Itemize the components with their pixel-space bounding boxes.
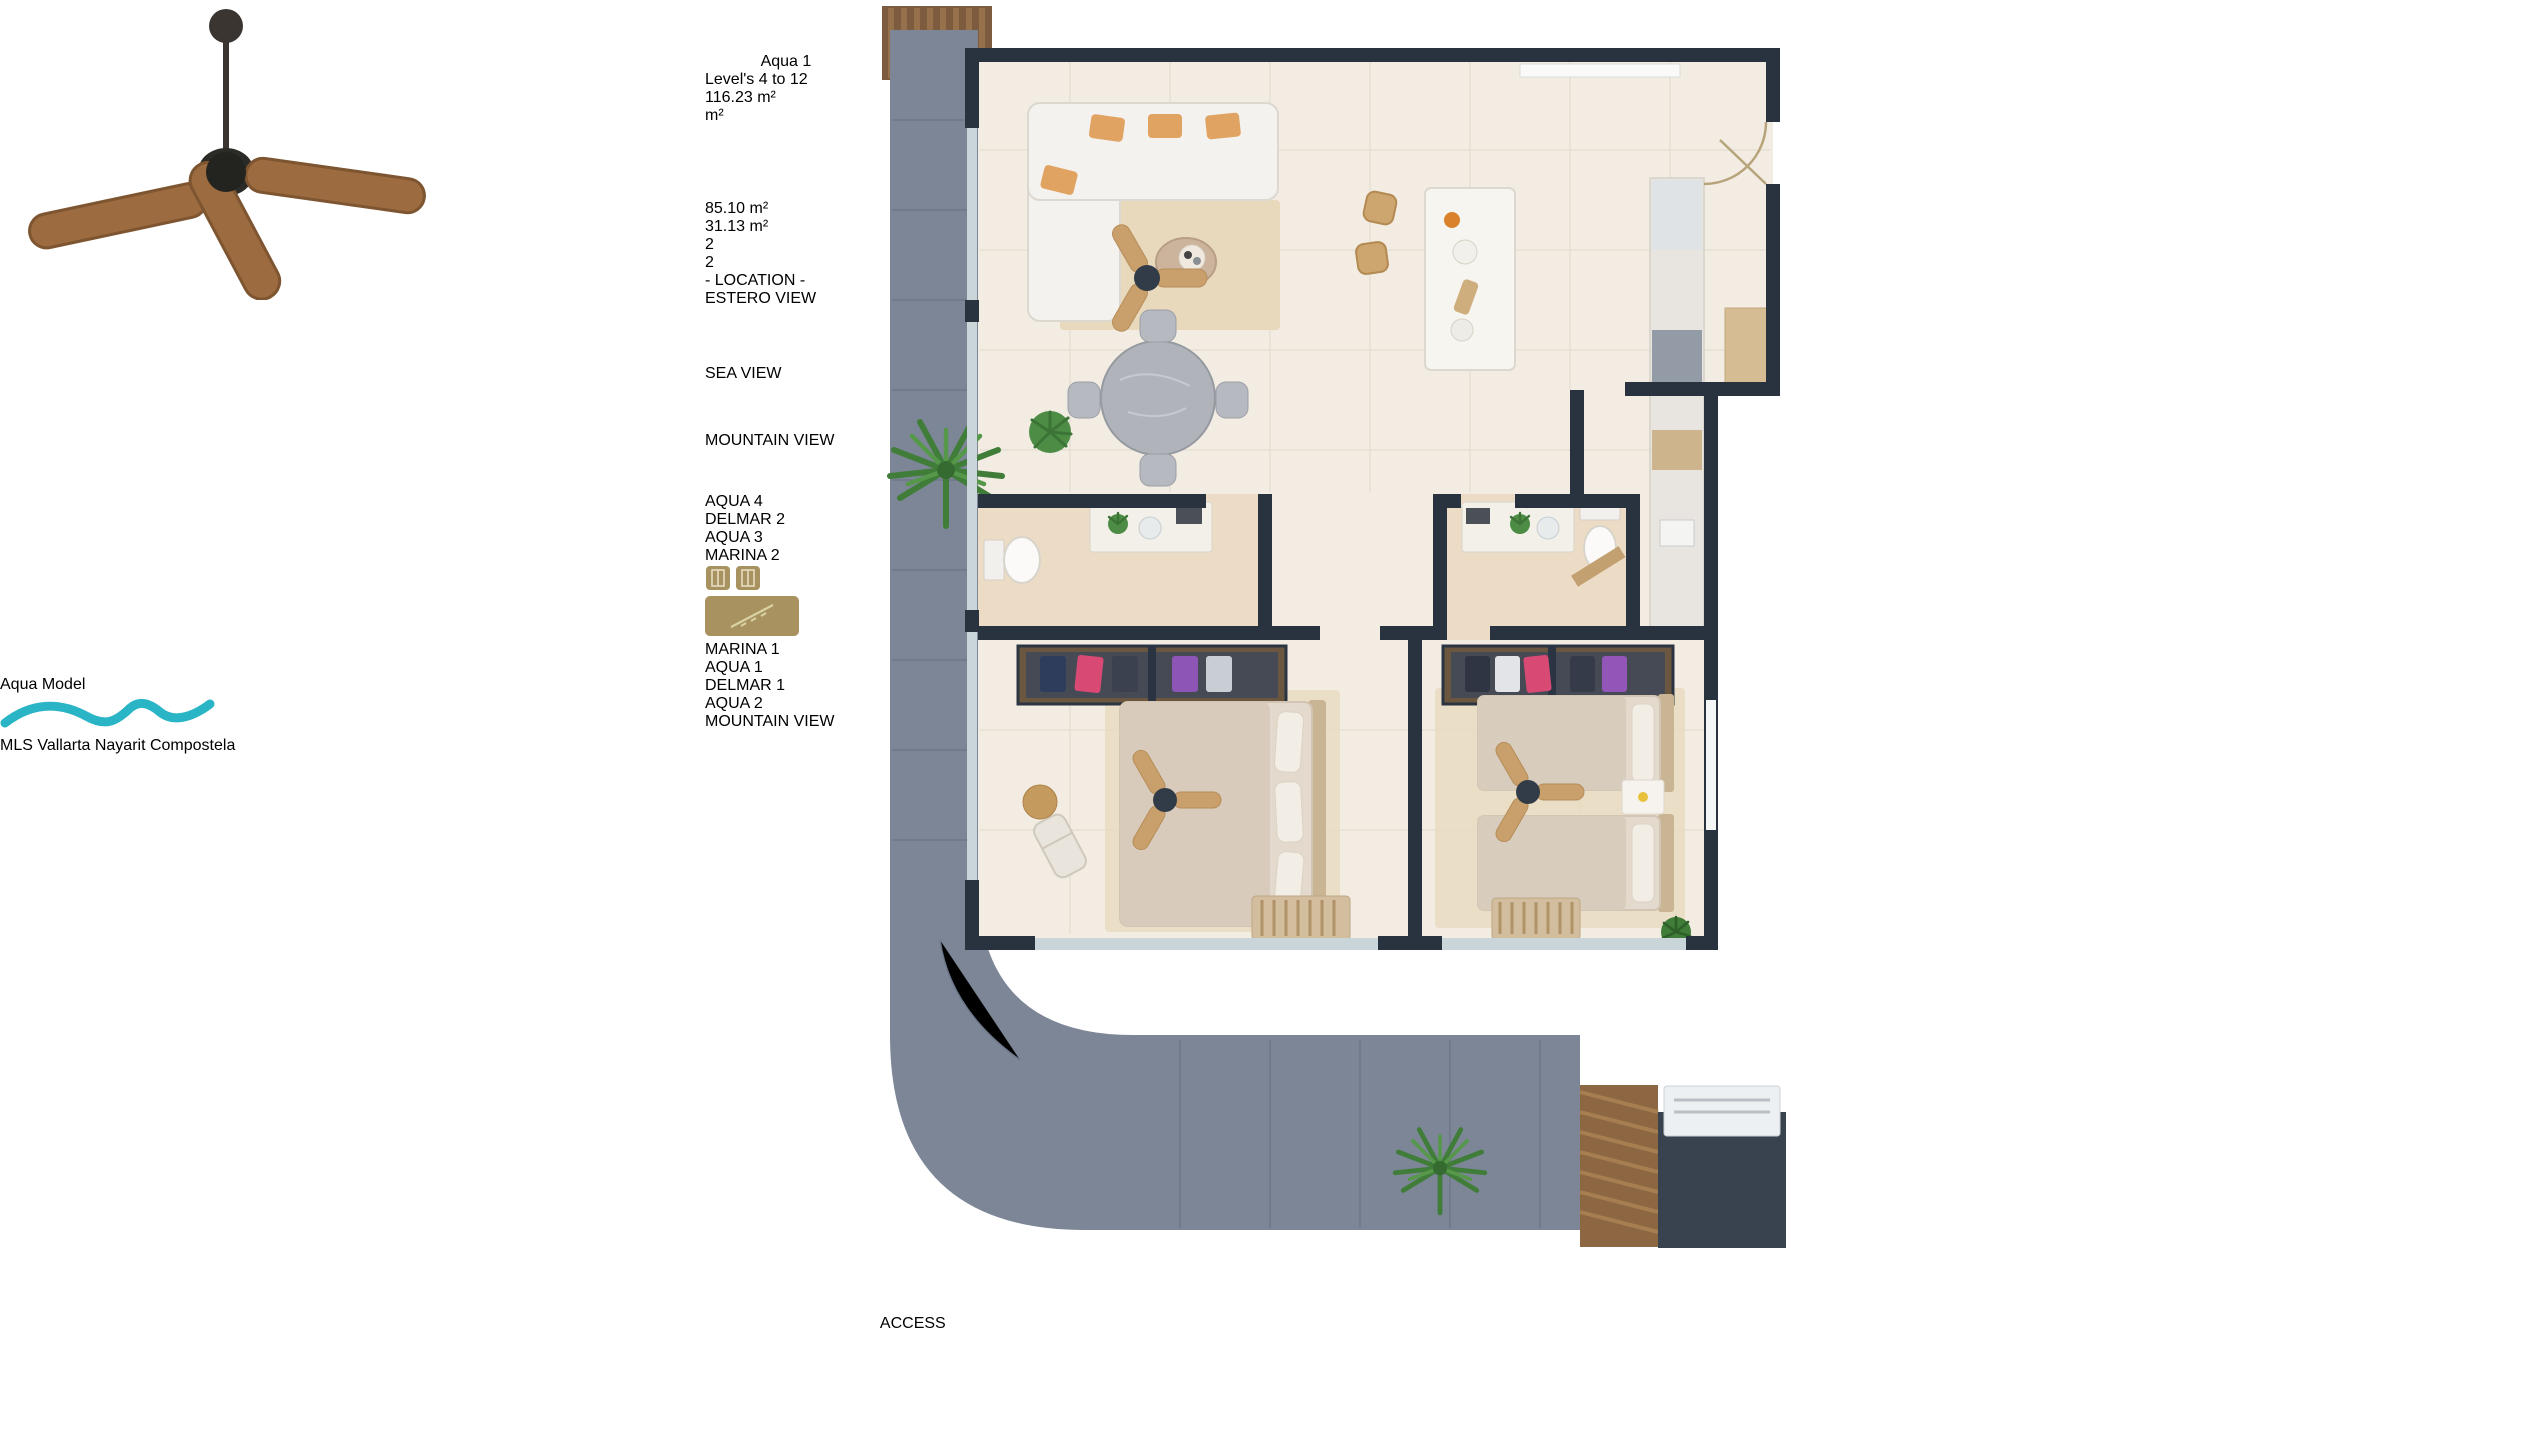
cell-number: 1 [754,659,763,676]
grid-cell-delmar-2: DELMAR 2 [705,511,880,529]
pillows [1273,711,1304,911]
area-header: m² [705,107,880,125]
mountain-view-bottom-label: MOUNTAIN VIEW [705,713,880,731]
bed-icon [767,145,833,195]
dining-chair [0,558,121,693]
grid-cell-aqua-1: AQUA 1 [705,659,880,677]
unit-name-pill: Aqua 1 [705,0,880,71]
grid-cell-marina-1: MARINA 1 [705,641,880,659]
cell-number: 2 [776,511,785,528]
wave-squiggle-icon [0,694,216,732]
cell-number: 2 [754,695,763,712]
cell-name: AQUA [705,529,749,546]
access-label: ACCESS [880,1315,946,1332]
dining-chair [0,295,110,444]
cell-name: MARINA [705,547,766,564]
cell-name: DELMAR [705,511,772,528]
watermark: MLS Vallarta Nayarit Compostela [0,737,705,755]
levels-label: Level's 4 to 12 [705,71,880,89]
mountain-icon [705,731,779,769]
fridge [1652,180,1702,250]
sink [1660,520,1694,546]
access-badge: ACCESS [880,1315,1810,1333]
cell-number: 4 [754,493,763,510]
indoor-plant [1029,411,1071,453]
spec-table: m² [705,107,880,272]
tower-location-grid: AQUA 4 DELMAR 2 AQUA 3 MARINA 2 [705,493,880,713]
cell-name: DELMAR [705,677,772,694]
estero-view-block: ESTERO VIEW [705,290,880,365]
unit-info-panel: Aqua 1 Level's 4 to 12 116.23 m² m² [705,0,880,1431]
ac-vent [1520,64,1680,77]
kitchen-island [1425,188,1515,370]
elevators [705,565,880,596]
stairs-icon [705,596,799,636]
toilet-tank [984,540,1004,580]
unit-name: Aqua 1 [761,53,812,70]
toilet-icon [838,125,880,195]
side-table [1023,785,1057,819]
location-heading: - LOCATION - [705,272,880,290]
dining-chair [0,426,113,584]
water-lines-icon [705,0,757,66]
basin [1139,517,1161,539]
cell-number: 2 [771,547,780,564]
sea-waves-icon [705,383,821,427]
grid-cell-aqua-2: AQUA 2 [705,695,880,713]
cell-number: 1 [776,677,785,694]
mountain-view-right-block: MOUNTAIN VIEW [705,432,880,493]
grid-cell-delmar-1: DELMAR 1 [705,677,880,695]
grid-cell-marina-2: MARINA 2 [705,547,880,565]
mountain-view-right-label: MOUNTAIN VIEW [705,432,880,450]
dining-table [1101,341,1215,455]
bedrooms-value: 2 [705,236,845,254]
elevator-icon [735,565,761,591]
grid-cell-core [705,565,880,641]
estero-icon [705,308,777,360]
sea-view-label: SEA VIEW [705,365,880,383]
total-area-badge: 116.23 m² [705,89,880,107]
interior-area-value: 85.10 m² [705,200,865,218]
sea-view-block: SEA VIEW [705,365,880,432]
cell-name: AQUA [705,493,749,510]
tray [1179,245,1205,271]
floor-plan-panel: ACCESS [880,0,1810,1431]
equipment-deck [1580,1085,1786,1248]
cell-name: AQUA [705,659,749,676]
model-title: Aqua Model [0,676,705,694]
grid-cell-aqua-4: AQUA 4 [705,493,880,511]
estero-view-label: ESTERO VIEW [705,290,880,308]
bedroom-2 [1478,694,1691,947]
cell-name: MARINA [705,641,766,658]
cell-number: 1 [771,641,780,658]
entry-wardrobe [1725,308,1767,388]
floor-plan [880,0,1810,1310]
bathrooms-value: 2 [705,254,845,272]
basin [1537,517,1559,539]
marketing-sheet: Aqua Model MLS Vallarta Nayarit Composte… [0,0,2545,1431]
mountain-icon [705,450,779,488]
toilet [1004,537,1040,583]
interior-photo-panel: Aqua Model MLS Vallarta Nayarit Composte… [0,0,705,1431]
terrace-icon [705,125,763,195]
cell-name: AQUA [705,695,749,712]
elevator-icon [705,565,731,591]
closet-master [1018,646,1286,704]
grid-cell-aqua-3: AQUA 3 [705,529,880,547]
ceiling-fan-photo [0,0,460,300]
mountain-view-bottom-block: MOUNTAIN VIEW [705,713,880,774]
cell-number: 3 [754,529,763,546]
terrace-area-value: 31.13 m² [705,218,865,236]
